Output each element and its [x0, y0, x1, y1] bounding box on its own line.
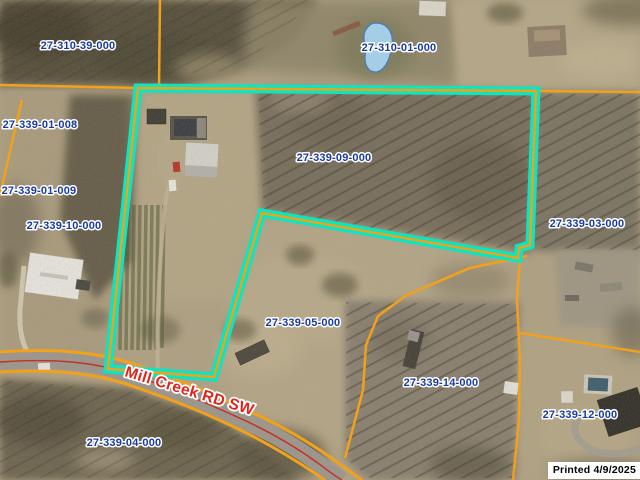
map-canvas[interactable]: 27-310-39-00027-310-01-00027-339-01-0082… [0, 0, 640, 480]
parcel-label-27-339-01-009: 27-339-01-009 [2, 185, 77, 197]
parcel-label-27-339-14-000: 27-339-14-000 [404, 377, 479, 389]
parcel-label-27-339-10-000: 27-339-10-000 [27, 220, 102, 232]
parcel-label-27-339-03-000: 27-339-03-000 [550, 218, 625, 230]
parcel-label-27-339-05-000: 27-339-05-000 [266, 317, 341, 329]
parcel-label-27-310-39-000: 27-310-39-000 [41, 40, 116, 52]
boundary-vertical-top [159, 0, 160, 86]
aerial-noise [0, 0, 640, 480]
printed-date-stamp: Printed 4/9/2025 [548, 462, 640, 479]
aerial-map: 27-310-39-00027-310-01-00027-339-01-0082… [0, 0, 640, 480]
parcel-label-27-339-04-000: 27-339-04-000 [87, 437, 162, 449]
parcel-label-27-339-09-000: 27-339-09-000 [297, 152, 372, 164]
parcel-label-27-339-12-000: 27-339-12-000 [543, 409, 618, 421]
parcel-label-27-310-01-000: 27-310-01-000 [362, 42, 437, 54]
parcel-label-27-339-01-008: 27-339-01-008 [3, 119, 78, 131]
